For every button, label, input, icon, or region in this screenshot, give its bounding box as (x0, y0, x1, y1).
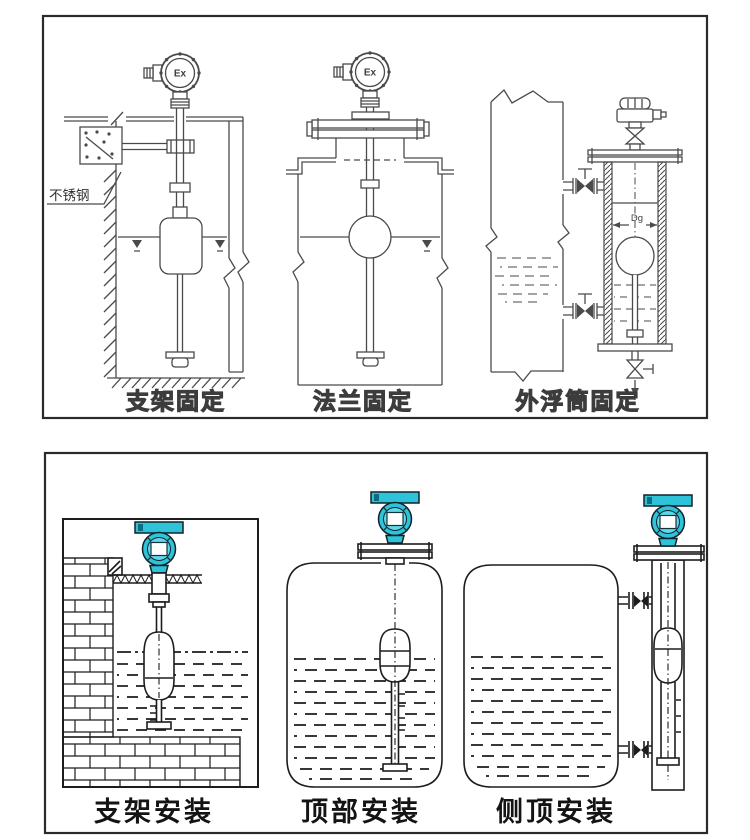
water-dashes (294, 659, 435, 779)
chamber-transmitter (617, 98, 666, 150)
water-dashes (471, 657, 611, 776)
cable-entry-connector (653, 110, 661, 119)
ceiling-lines (64, 117, 174, 121)
tank-nozzle (336, 138, 404, 158)
ex-marking: Ex (174, 69, 187, 80)
transmitter-stem (152, 573, 166, 594)
tank-top-break (491, 90, 563, 103)
flange-plate (358, 544, 432, 550)
float-ball (349, 216, 391, 258)
float (160, 218, 202, 274)
support-arm (122, 144, 167, 150)
flange-plate (634, 546, 704, 552)
water-dashes (117, 652, 248, 730)
tube-coupling (170, 183, 190, 192)
figure-bracket-fixing: Ex 不锈钢 支架固定 (47, 52, 249, 414)
tank-bottom-break (491, 371, 563, 381)
water-level-symbol (422, 240, 432, 248)
tube-end-stop (357, 352, 384, 358)
dimension-label: Dg (631, 213, 643, 224)
float-ball (616, 237, 654, 275)
flange-plate (312, 120, 424, 128)
tank-walls (491, 102, 563, 372)
rod-end-stop (383, 764, 407, 771)
tank-liquid-dashes (495, 258, 558, 302)
chamber-bottom-flange (598, 344, 672, 351)
isolation-valve-upper (563, 169, 604, 194)
chamber-flange (588, 150, 682, 155)
figure-label: 外浮筒固定 (516, 388, 641, 414)
smart-transmitter-head (644, 495, 692, 546)
brick-wall (63, 558, 113, 737)
chamber-wall-right (658, 162, 666, 344)
ex-transmitter-head: Ex (144, 52, 201, 93)
figure-bracket-install: 支架安装 (63, 519, 258, 827)
tank-right-wall (229, 117, 243, 372)
figure-top-install: 顶部安装 (287, 492, 442, 827)
connection-lower (618, 741, 652, 758)
tank-outline (464, 565, 618, 787)
connection-upper (618, 592, 652, 609)
figure-label: 顶部安装 (301, 796, 421, 827)
rod-end-stop (147, 722, 171, 729)
bottom-panel: 支架安装 (45, 453, 707, 833)
brick-floor (63, 737, 240, 787)
figure-label: 法兰固定 (313, 388, 413, 414)
chamber-wall-left (604, 162, 612, 344)
top-panel: Ex 不锈钢 支架固定 (43, 16, 707, 418)
tank-outline (287, 563, 442, 787)
tube-end-stop (166, 352, 194, 358)
figure-label: 支架安装 (94, 797, 214, 827)
figure-side-top-install: 侧顶安装 (464, 495, 704, 827)
isolation-valve-lower (563, 294, 604, 319)
ground-hatch (112, 378, 241, 388)
material-note: 不锈钢 (49, 188, 90, 203)
ex-marking: Ex (364, 68, 377, 79)
ex-transmitter-head: Ex (334, 51, 391, 92)
smart-transmitter-head (371, 492, 419, 543)
figure-external-chamber-fixing: Dg 外浮筒固定 (486, 90, 682, 414)
figure-flange-fixing: Ex 法兰固定 (286, 51, 454, 414)
rod-end-stop (657, 758, 679, 765)
figure-label: 侧顶安装 (496, 797, 616, 827)
installation-diagram: Ex 不锈钢 支架固定 (0, 0, 750, 840)
figure-label: 支架固定 (125, 388, 226, 414)
smart-transmitter-head (135, 522, 183, 573)
break-slash (111, 112, 123, 125)
